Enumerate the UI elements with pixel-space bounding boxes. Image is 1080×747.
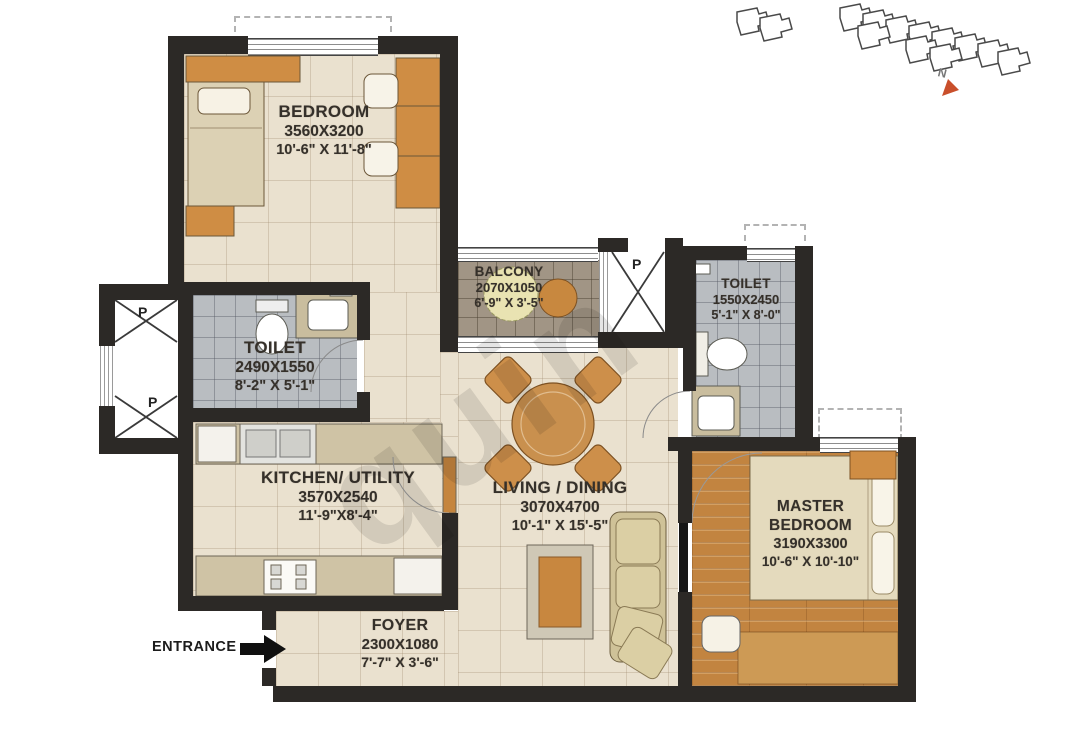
- wall-duct-left-bottom: [99, 438, 180, 454]
- master-pouf: [702, 616, 740, 652]
- living-label: LIVING / DINING 3070X4700 10'-1" X 15'-5…: [470, 478, 650, 535]
- wall-master-left-upper: [678, 451, 692, 523]
- duct-p-label-3: P: [632, 256, 641, 272]
- room-dims-mm: 2070X1050: [458, 280, 560, 296]
- room-dims-mm: 2490X1550: [200, 359, 350, 378]
- entrance-arrow-icon: [240, 635, 286, 663]
- wall-foyer-left-bottom: [262, 668, 276, 686]
- balcony-label: BALCONY 2070X1050 6'-9" X 3'-5": [458, 264, 560, 312]
- room-dims-ft: 10'-1" X 15'-5": [470, 518, 650, 536]
- master-dresser: [738, 632, 898, 684]
- wall-master-top: [678, 437, 820, 451]
- wall-kitchen-bottom: [178, 596, 444, 611]
- bedroom-headboard-unit: [186, 56, 300, 82]
- center-table-top: [539, 557, 581, 627]
- bedroom-pillow: [198, 88, 250, 114]
- room-dims-ft: 7'-7" X 3'-6": [330, 654, 470, 671]
- wall-master-right: [898, 437, 916, 702]
- wall-toilet1-top: [178, 282, 370, 295]
- toilet1-washbasin: [308, 300, 348, 330]
- wall-bottom: [273, 686, 916, 702]
- wall-toilet1-right-upper: [357, 282, 370, 340]
- room-dims-mm: 1550X2450: [694, 292, 798, 308]
- floor-plan-canvas: BEDROOM 3560X3200 10'-6" X 11'-8" TOILET…: [0, 0, 1080, 747]
- room-dims-mm: 2300X1080: [330, 636, 470, 654]
- room-name: TOILET: [200, 338, 350, 359]
- wall-foyer-left-top: [262, 610, 276, 630]
- room-dims-ft: 11'-9"X8'-4": [238, 508, 438, 526]
- room-dims-mm: 3560X3200: [244, 123, 404, 142]
- room-name: FOYER: [330, 616, 470, 636]
- room-dims-ft: 5'-1" X 8'-0": [694, 308, 798, 323]
- north-arrow-icon: [942, 79, 959, 96]
- room-dims-ft: 10'-6" X 10'-10": [748, 554, 873, 570]
- toilet1-label: TOILET 2490X1550 8'-2" X 5'-1": [200, 338, 350, 395]
- dining-set: [483, 355, 624, 494]
- room-name: MASTER BEDROOM: [748, 498, 873, 536]
- foyer-label: FOYER 2300X1080 7'-7" X 3'-6": [330, 616, 470, 671]
- room-dims-ft: 10'-6" X 11'-8": [244, 142, 404, 160]
- room-name: KITCHEN/ UTILITY: [238, 468, 438, 489]
- plan-overlay: [0, 0, 1080, 747]
- wall-kitchen-left: [178, 282, 193, 611]
- toilet1-cistern: [256, 300, 288, 312]
- bedroom-label: BEDROOM 3560X3200 10'-6" X 11'-8": [244, 102, 404, 159]
- room-dims-mm: 3570X2540: [238, 489, 438, 508]
- kitchen-utility-counter: [394, 558, 442, 594]
- duct-p-label-1: P: [138, 304, 147, 320]
- living-furniture: [527, 512, 675, 681]
- room-dims-mm: 3070X4700: [470, 499, 650, 518]
- room-name: LIVING / DINING: [470, 478, 650, 499]
- room-dims-ft: 8'-2" X 5'-1": [200, 378, 350, 396]
- room-name: BALCONY: [458, 264, 560, 280]
- room-name: TOILET: [694, 276, 798, 292]
- wall-bedroom-balcony-right: [440, 36, 458, 352]
- dining-table: [512, 383, 594, 465]
- wall-duct-mid-bottom: [598, 332, 683, 348]
- room-dims-ft: 6'-9" X 3'-5": [458, 296, 560, 311]
- wall-master-left-lower: [678, 592, 692, 686]
- kitchen-label: KITCHEN/ UTILITY 3570X2540 11'-9"X8'-4": [238, 468, 438, 525]
- duct-p-label-2: P: [148, 394, 157, 410]
- entrance-label: ENTRANCE: [152, 639, 237, 655]
- kitchen-door-leaf: [443, 457, 456, 513]
- room-dims-mm: 3190X3300: [748, 536, 873, 554]
- site-map: [737, 4, 1030, 75]
- wall-kitchen-right: [442, 513, 458, 610]
- toilet2-cistern: [696, 332, 708, 376]
- room-name: BEDROOM: [244, 102, 404, 123]
- wall-duct-left-upper: [99, 284, 115, 346]
- master-label: MASTER BEDROOM 3190X3300 10'-6" X 10'-10…: [748, 498, 873, 570]
- toilet2-washbasin: [698, 396, 734, 430]
- kitchen-fridge-slot: [198, 426, 236, 462]
- master-pillow-2: [872, 532, 894, 594]
- bedroom-foot-cabinet: [186, 206, 234, 236]
- toilet2-door-swing: [643, 391, 690, 438]
- wall-bedroom-left: [168, 36, 184, 294]
- wall-toilet1-bottom: [193, 408, 370, 422]
- master-door-leaf: [679, 523, 688, 592]
- toilet2-label: TOILET 1550X2450 5'-1" X 8'-0": [694, 276, 798, 324]
- wall-duct-mid-top: [598, 238, 628, 252]
- master-side-unit: [850, 451, 896, 479]
- toilet2-wc: [707, 338, 747, 370]
